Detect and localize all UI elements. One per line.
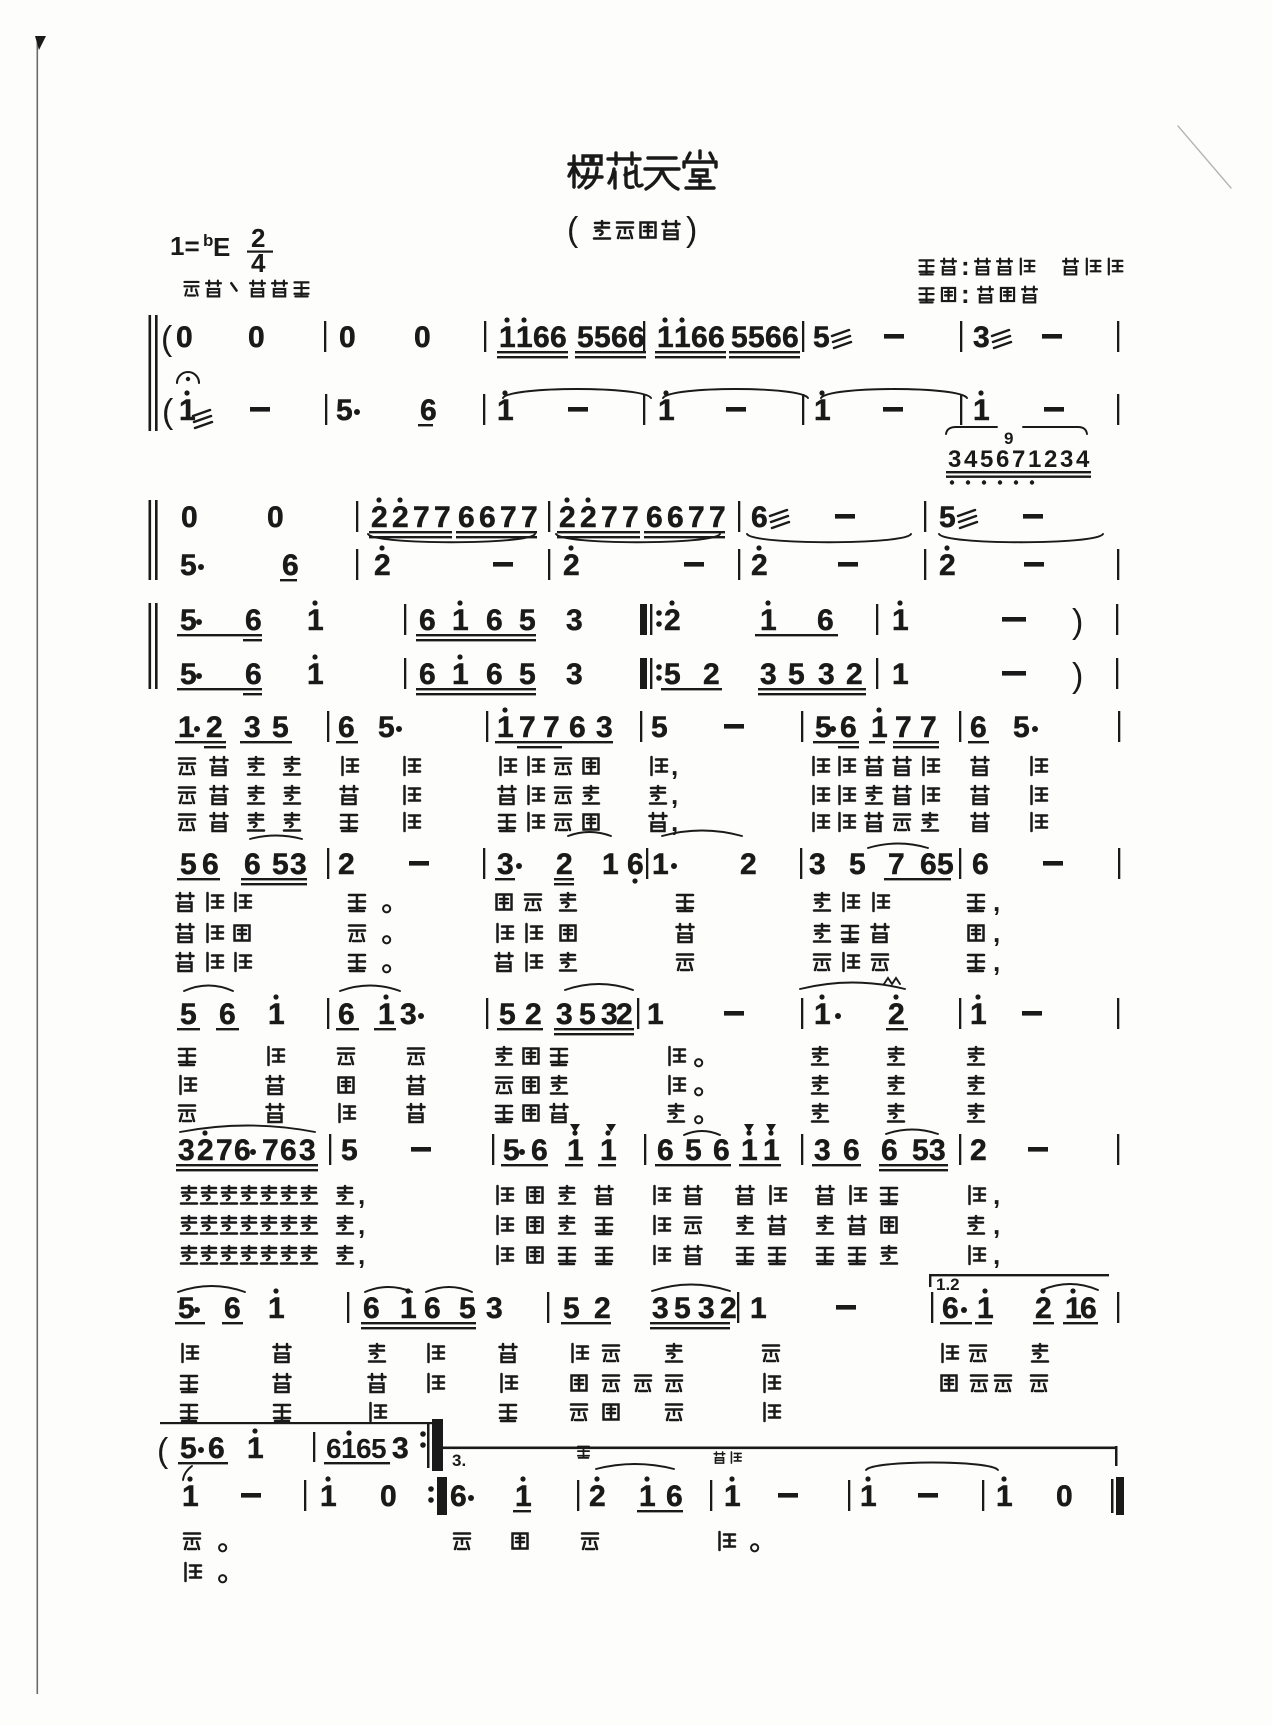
svg-text:1: 1 [268,1292,285,1325]
svg-text:2: 2 [563,549,580,582]
svg-text:0: 0 [380,1480,397,1513]
svg-text:2: 2 [888,998,905,1031]
svg-text:177: 177 [871,711,937,744]
svg-text:763: 763 [262,1134,316,1167]
svg-text:5: 5 [180,1432,197,1465]
svg-text:6: 6 [245,604,262,637]
svg-text:6: 6 [282,549,299,582]
svg-text:3.: 3. [452,1451,466,1470]
svg-text:2: 2 [338,848,355,881]
svg-text:1: 1 [515,1480,532,1513]
svg-text:5: 5 [178,1292,195,1325]
svg-text:1: 1 [497,394,514,427]
svg-text:,: , [993,1180,1000,1210]
svg-text:1: 1 [600,1134,617,1167]
svg-text:3: 3 [400,998,417,1031]
svg-text:(: ( [161,320,173,358]
svg-text:5: 5 [180,604,197,637]
svg-text:E: E [213,232,230,262]
svg-text:3: 3 [566,604,583,637]
svg-text:6: 6 [817,604,834,637]
svg-text:1: 1 [977,1292,994,1325]
svg-text:,: , [993,887,1000,917]
svg-text:5: 5 [651,711,668,744]
svg-text:1: 1 [724,1480,741,1513]
svg-text:6: 6 [245,658,262,691]
svg-text:1: 1 [178,711,195,744]
svg-text:5: 5 [815,711,832,744]
svg-text:6: 6 [972,848,989,881]
svg-text:5: 5 [1013,711,1030,744]
svg-text:,: , [993,1210,1000,1240]
svg-text::: : [961,251,970,281]
svg-text:4: 4 [251,248,266,278]
svg-text:6: 6 [751,501,768,534]
svg-text:3532: 3532 [556,998,633,1031]
svg-text:5: 5 [180,998,197,1031]
svg-text:6: 6 [224,1292,241,1325]
svg-text:1: 1 [860,1480,877,1513]
svg-text:3: 3 [973,321,990,354]
svg-text:6165: 6165 [326,1433,387,1464]
svg-text:6: 6 [840,711,857,744]
svg-text:,: , [358,1210,365,1240]
svg-text:6: 6 [627,848,644,881]
svg-text:1: 1 [647,998,664,1031]
svg-text:1: 1 [307,658,324,691]
svg-text:5: 5 [378,711,395,744]
svg-text:,: , [993,918,1000,948]
svg-text:5: 5 [503,1134,520,1167]
svg-text:1: 1 [973,394,990,427]
svg-text:5: 5 [336,394,353,427]
svg-text:1: 1 [567,1134,584,1167]
svg-text:,: , [358,1180,365,1210]
svg-text:2: 2 [374,549,391,582]
svg-text:3: 3 [566,658,583,691]
svg-text:2: 2 [970,1134,987,1167]
svg-text:2: 2 [206,711,223,744]
svg-text:1: 1 [892,658,909,691]
svg-text:6: 6 [970,711,987,744]
svg-text:1: 1 [268,998,285,1031]
svg-text:5: 5 [341,1134,358,1167]
svg-text:1: 1 [378,998,395,1031]
svg-text:6: 6 [450,1480,467,1513]
svg-text:653: 653 [244,848,307,881]
svg-text:(: ( [567,211,579,249]
svg-text:b: b [203,231,213,250]
svg-text:0: 0 [1056,1480,1073,1513]
svg-text:1: 1 [814,998,831,1031]
svg-text:5: 5 [939,501,956,534]
svg-text:3: 3 [392,1432,409,1465]
svg-text:6: 6 [338,998,355,1031]
svg-text:653: 653 [881,1134,946,1167]
svg-text:656: 656 [657,1134,730,1167]
svg-text:1: 1 [652,848,669,881]
svg-text:1: 1 [602,848,619,881]
svg-text:6: 6 [219,998,236,1031]
svg-text:1: 1 [750,1292,767,1325]
svg-text:,: , [993,1240,1000,1270]
svg-text:1: 1 [892,604,909,637]
svg-text:): ) [1072,657,1083,695]
svg-text:2: 2 [664,604,681,637]
svg-text:1: 1 [320,1480,337,1513]
svg-text:1: 1 [658,394,675,427]
svg-text:1: 1 [182,1480,199,1513]
svg-text:2: 2 [751,549,768,582]
svg-text:1: 1 [247,1432,264,1465]
svg-text:): ) [1072,603,1083,641]
svg-text:2: 2 [1035,1292,1052,1325]
svg-text:1: 1 [814,394,831,427]
svg-text:1=: 1= [170,231,200,261]
svg-text:6: 6 [338,711,355,744]
svg-text:2: 2 [589,1480,606,1513]
svg-text:5: 5 [813,321,830,354]
svg-text:6: 6 [531,1134,548,1167]
svg-text:1: 1 [760,604,777,637]
svg-text:6: 6 [420,394,437,427]
svg-text:,: , [993,947,1000,977]
svg-text:3: 3 [486,1292,503,1325]
svg-text:1: 1 [970,998,987,1031]
svg-text:,: , [358,1240,365,1270]
svg-text:5: 5 [180,549,197,582]
svg-text:,: , [671,780,678,810]
svg-text:1: 1 [307,604,324,637]
svg-text:345671234: 345671234 [948,446,1090,473]
svg-text:6: 6 [208,1432,225,1465]
svg-text:3: 3 [497,848,514,881]
svg-text::: : [961,279,970,309]
svg-text:6: 6 [942,1292,959,1325]
svg-text:): ) [686,211,697,249]
svg-text:3: 3 [596,711,613,744]
svg-text:(: ( [162,393,174,431]
svg-text:2: 2 [556,848,573,881]
svg-text:5: 5 [180,658,197,691]
svg-text:2: 2 [740,848,757,881]
svg-text:1: 1 [996,1480,1013,1513]
svg-text:2: 2 [939,549,956,582]
svg-text:16: 16 [1065,1292,1097,1325]
svg-text:(: ( [157,1432,169,1470]
svg-text:,: , [671,751,678,781]
